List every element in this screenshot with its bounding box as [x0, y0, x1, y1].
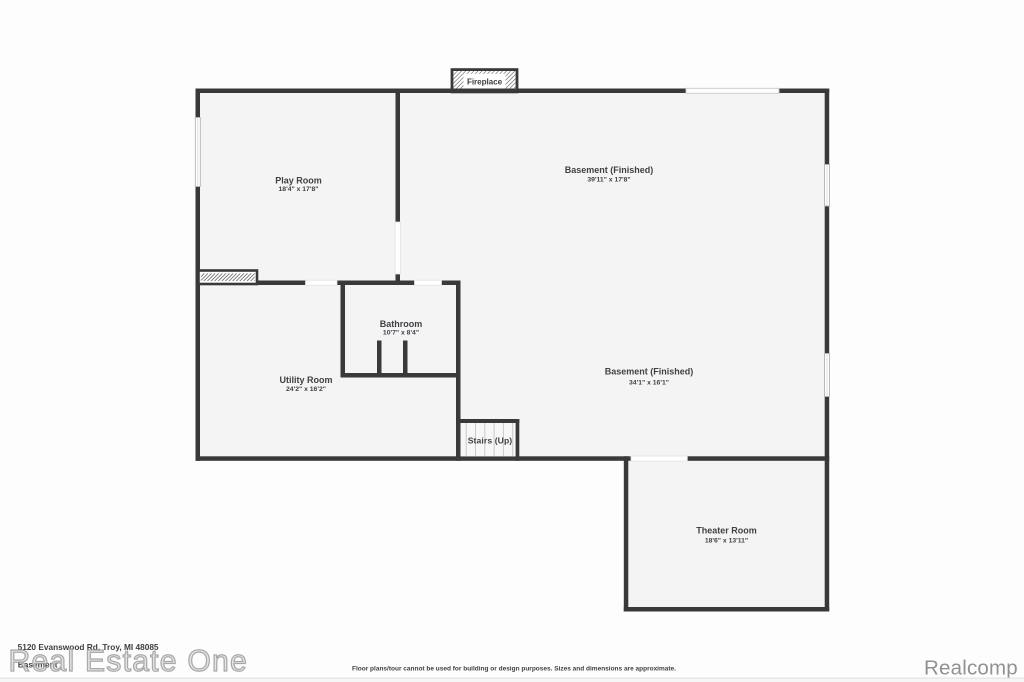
- svg-text:18'4" x 17'8": 18'4" x 17'8": [279, 186, 319, 193]
- svg-text:18'6" x 13'11": 18'6" x 13'11": [705, 537, 748, 544]
- svg-text:Utility Room: Utility Room: [280, 375, 333, 385]
- svg-text:Basement (Finished): Basement (Finished): [565, 165, 654, 175]
- svg-text:Stairs (Up): Stairs (Up): [468, 436, 513, 446]
- svg-text:Realcomp: Realcomp: [924, 657, 1018, 680]
- svg-text:Floor plans/tour cannot be use: Floor plans/tour cannot be used for buil…: [352, 665, 676, 672]
- svg-text:Real Estate One: Real Estate One: [9, 645, 249, 678]
- svg-text:Theater Room: Theater Room: [696, 526, 757, 536]
- svg-text:Bathroom: Bathroom: [380, 319, 423, 329]
- svg-text:Basement (Finished): Basement (Finished): [605, 367, 694, 377]
- svg-text:Play Room: Play Room: [275, 175, 322, 185]
- svg-text:34'1" x 16'1": 34'1" x 16'1": [629, 380, 669, 387]
- svg-text:39'11" x 17'8": 39'11" x 17'8": [587, 177, 630, 184]
- svg-text:24'2" x 16'2": 24'2" x 16'2": [286, 386, 326, 393]
- svg-text:10'7" x 8'4": 10'7" x 8'4": [383, 330, 419, 337]
- svg-text:Fireplace: Fireplace: [467, 77, 503, 86]
